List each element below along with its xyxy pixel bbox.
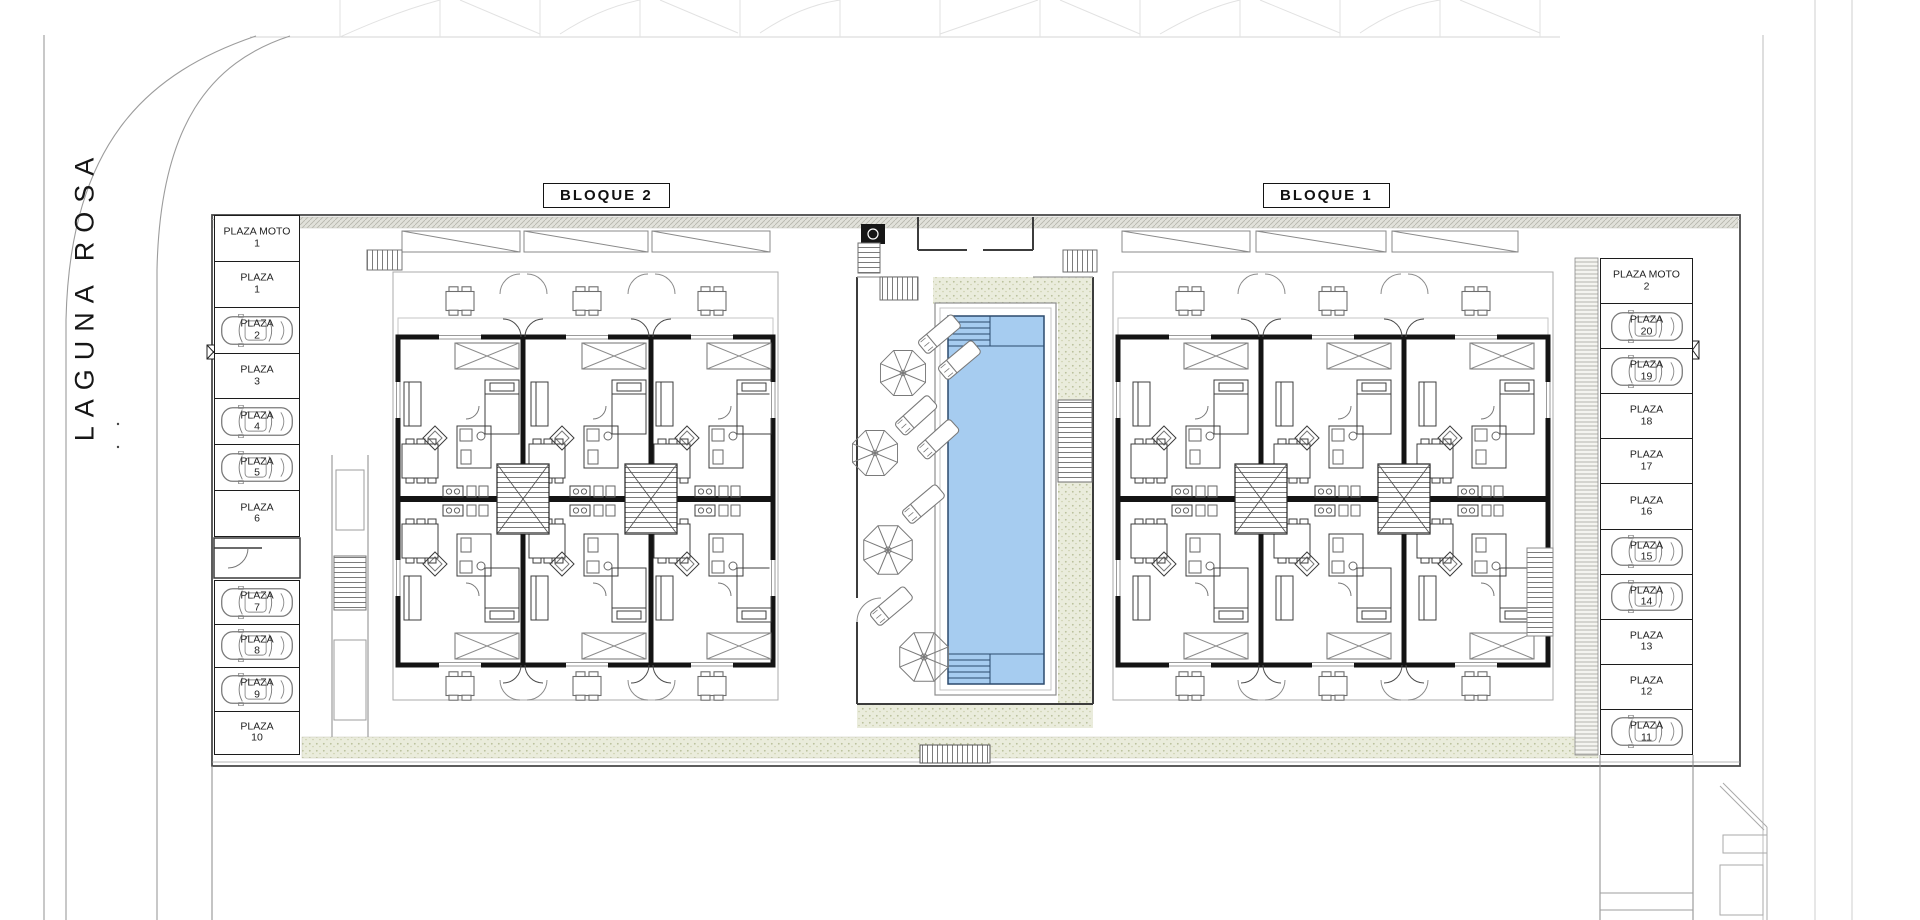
parking-space-label: PLAZA19	[1601, 360, 1692, 383]
parking-space-label: PLAZA17	[1601, 450, 1692, 473]
parking-space: PLAZA4	[215, 399, 299, 445]
parking-space-label: PLAZA14	[1601, 585, 1692, 608]
parking-space: PLAZA8	[215, 625, 299, 669]
site-plan: LAGUNA ROSA BLOQUE 2 BLOQUE 1 PLAZA MOTO…	[0, 0, 1920, 920]
parking-space-label: PLAZA4	[215, 410, 299, 433]
parking-space: PLAZA MOTO2	[1601, 259, 1692, 304]
block-2-label: BLOQUE 2	[543, 183, 670, 208]
parking-space-label: PLAZA6	[215, 502, 299, 525]
parking-space: PLAZA11	[1601, 710, 1692, 754]
parking-space: PLAZA14	[1601, 575, 1692, 620]
parking-space-label: PLAZA18	[1601, 405, 1692, 428]
building-block-2	[395, 287, 777, 700]
parking-space-label: PLAZA13	[1601, 630, 1692, 653]
parking-space-label: PLAZA MOTO1	[215, 227, 299, 250]
building-block-1	[1115, 287, 1554, 700]
parking-space-label: PLAZA3	[215, 364, 299, 387]
parking-space-label: PLAZA15	[1601, 540, 1692, 563]
parking-space: PLAZA15	[1601, 530, 1692, 575]
top-walkway	[214, 217, 1738, 252]
parking-space: PLAZA3	[215, 354, 299, 400]
parking-space: PLAZA1	[215, 262, 299, 308]
bottom-gate	[920, 745, 990, 763]
entrance-lobby	[214, 538, 300, 578]
shower-icon	[861, 224, 885, 244]
parking-space: PLAZA20	[1601, 304, 1692, 349]
parking-column-left-bottom: PLAZA7 PLAZA8 PLAZA9 PLAZA10	[214, 580, 300, 755]
parking-space: PLAZA19	[1601, 349, 1692, 394]
neighbour-outlines	[250, 0, 1560, 37]
parking-space-label: PLAZA12	[1601, 675, 1692, 698]
parking-space: PLAZA10	[215, 712, 299, 755]
parking-space-label: PLAZA9	[215, 678, 299, 701]
parking-space: PLAZA2	[215, 308, 299, 354]
parking-space: PLAZA17	[1601, 439, 1692, 484]
parking-space: PLAZA7	[215, 581, 299, 625]
parking-space-label: PLAZA10	[215, 721, 299, 744]
parking-space-label: PLAZA20	[1601, 315, 1692, 338]
parking-space-label: PLAZA7	[215, 591, 299, 614]
parking-space-label: PLAZA11	[1601, 720, 1692, 743]
parking-space: PLAZA16	[1601, 484, 1692, 529]
parking-space-label: PLAZA16	[1601, 495, 1692, 518]
parking-space: PLAZA13	[1601, 620, 1692, 665]
block-1-label: BLOQUE 1	[1263, 183, 1390, 208]
parking-space: PLAZA12	[1601, 665, 1692, 710]
parking-space-label: PLAZA8	[215, 634, 299, 657]
external-stair	[1527, 548, 1553, 636]
parking-column-left-top: PLAZA MOTO1 PLAZA1 PLAZA2 PLAZA3	[214, 215, 300, 537]
parking-space-label: PLAZA1	[215, 273, 299, 296]
parking-space-label: PLAZA5	[215, 456, 299, 479]
parking-space: PLAZA9	[215, 668, 299, 712]
parking-space: PLAZA6	[215, 491, 299, 536]
parking-space: PLAZA18	[1601, 394, 1692, 439]
parking-column-right: PLAZA MOTO2 PLAZA20 PLAZA19 PLAZA18	[1600, 258, 1693, 755]
street-name-laguna-rosa: LAGUNA ROSA	[70, 149, 101, 442]
parking-space-label: PLAZA2	[215, 319, 299, 342]
right-planter-strip	[1575, 258, 1598, 755]
parking-space: PLAZA5	[215, 445, 299, 491]
parking-space: PLAZA MOTO1	[215, 216, 299, 262]
parking-space-label: PLAZA MOTO2	[1601, 270, 1692, 293]
